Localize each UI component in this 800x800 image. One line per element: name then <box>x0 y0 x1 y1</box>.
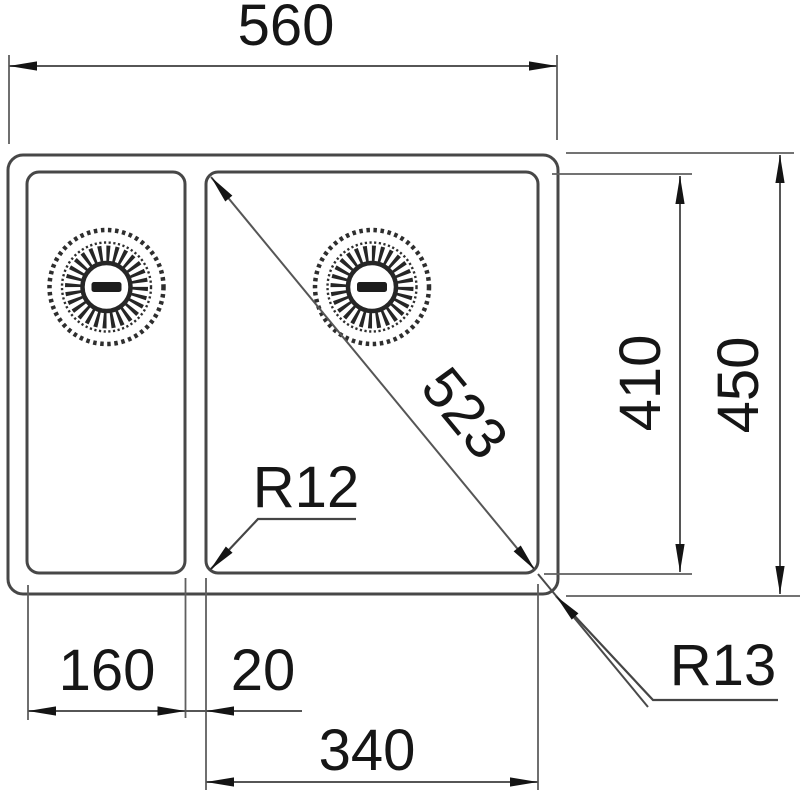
dim-label-small-bowl-width: 160 <box>59 638 156 703</box>
dim-label-outer-corner-radius: R13 <box>670 633 776 698</box>
drawing-canvas: 560 410 450 523 160 20 340 <box>0 0 800 800</box>
dim-label-bowl-gap: 20 <box>231 638 296 703</box>
basket-strainer-drain-icon <box>50 230 164 344</box>
dim-label-overall-depth: 450 <box>706 337 771 434</box>
dim-label-inner-corner-radius: R12 <box>253 455 359 520</box>
callout-outer-corner-radius: R13 <box>556 596 778 700</box>
dim-label-overall-width: 560 <box>238 0 335 58</box>
dim-overall-width: 560 <box>9 0 557 144</box>
dim-bowl-gap: 20 <box>186 578 303 790</box>
dim-overall-depth: 450 <box>566 153 800 596</box>
dim-label-bowl-depth: 410 <box>608 335 673 432</box>
dim-label-large-bowl-width: 340 <box>319 718 416 783</box>
basket-strainer-drain-icon <box>315 230 429 344</box>
sink-technical-drawing: 560 410 450 523 160 20 340 <box>0 0 800 800</box>
dim-bowl-depth: 410 <box>544 174 692 574</box>
dim-small-bowl-width: 160 <box>28 578 186 720</box>
